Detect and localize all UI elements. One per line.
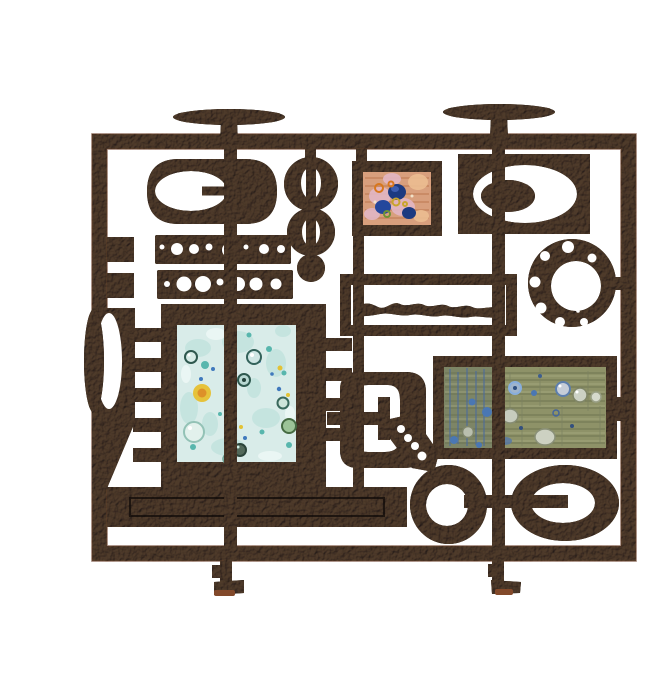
blue-panel-teeth-left	[133, 328, 162, 462]
double-ring-crossbar	[464, 495, 568, 508]
rail-stub-lower	[107, 273, 134, 298]
window-solid-oval	[481, 180, 535, 212]
wavy-bar	[357, 303, 501, 317]
heavy-bottom-bar	[107, 487, 407, 527]
artwork-photo: Black hammered wrought-iron fire screen …	[40, 16, 650, 666]
rail-stub-upper	[107, 237, 134, 262]
ring-chain-ball	[297, 254, 325, 282]
middle-rod	[353, 236, 364, 488]
green-enamel-panel	[444, 367, 606, 448]
left-foot	[212, 561, 244, 595]
pierced-ring-stub	[614, 277, 624, 290]
ring-chain-rod-lower	[306, 212, 316, 258]
fire-screen-artwork	[40, 16, 650, 666]
left-foot-pad	[214, 590, 235, 596]
green-panel-stub	[617, 397, 625, 421]
right-foot-pad	[495, 589, 513, 595]
ring-chain-rod-upper	[306, 158, 316, 210]
buckle-prong	[378, 397, 390, 440]
orange-tile-top-stub	[356, 149, 367, 162]
pierced-ring	[528, 239, 616, 327]
lens-carve	[84, 309, 104, 413]
orange-enamel-tile	[363, 172, 431, 225]
